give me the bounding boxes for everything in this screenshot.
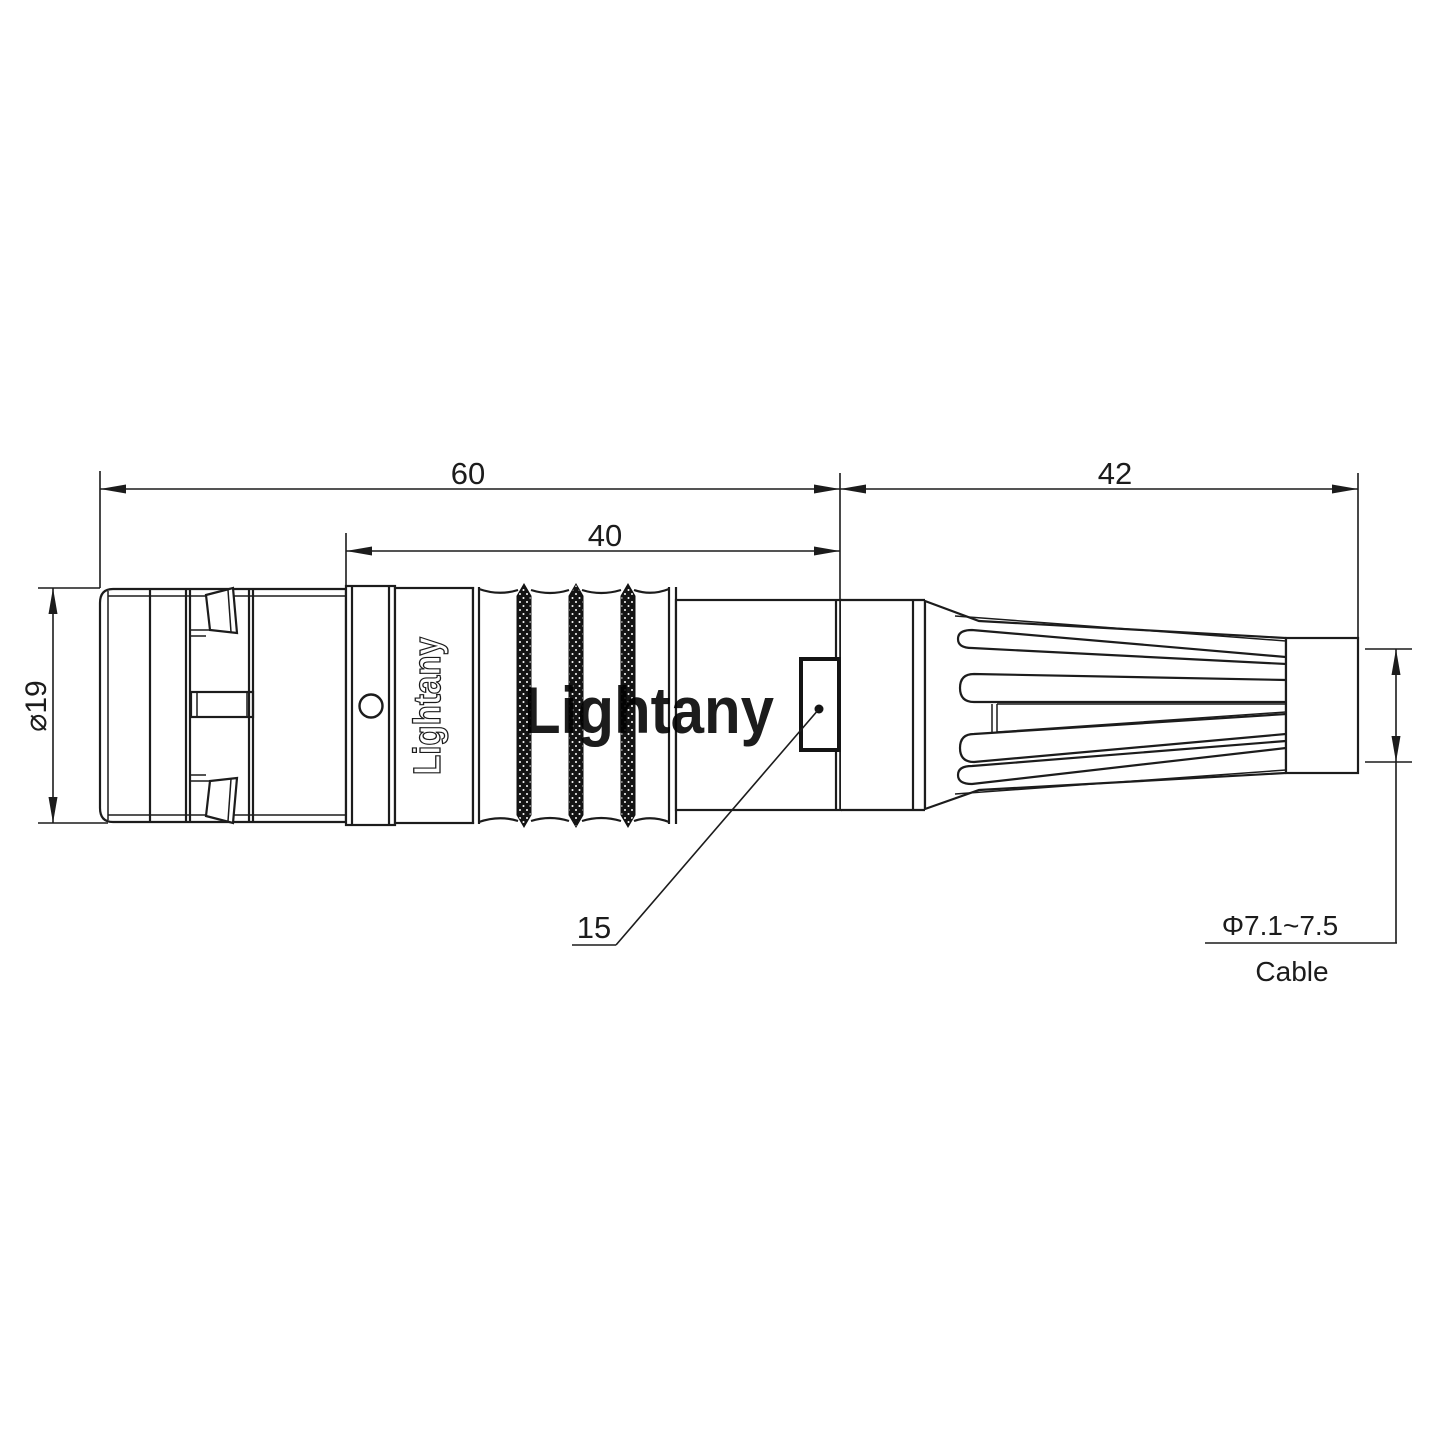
front-shell xyxy=(100,588,346,823)
dim-body-diameter-label: ⌀19 xyxy=(20,680,53,731)
watermark-text: Lightany xyxy=(524,673,774,747)
boot-rib-2 xyxy=(960,674,1286,702)
body-marking-text: Lightany xyxy=(407,637,449,775)
dim-front-length-label: 40 xyxy=(588,518,622,553)
technical-drawing-page: Lightany Lightany 60 42 xyxy=(0,0,1440,1440)
dim-boot-length-label: 42 xyxy=(1098,456,1132,491)
collar-hole xyxy=(360,695,383,718)
cable-end-cylinder xyxy=(1286,638,1358,773)
strain-relief-boot xyxy=(841,600,1358,810)
key-feature-label: 15 xyxy=(577,910,611,945)
cable-diameter-label: Φ7.1~7.5 xyxy=(1222,910,1339,941)
coupling-collar xyxy=(346,586,395,825)
key-slot xyxy=(191,692,253,717)
cable-label: Cable xyxy=(1255,956,1328,987)
connector-technical-drawing: Lightany Lightany 60 42 xyxy=(0,0,1440,1440)
dim-overall-length-label: 60 xyxy=(451,456,485,491)
keying-feature-rect xyxy=(801,659,839,750)
